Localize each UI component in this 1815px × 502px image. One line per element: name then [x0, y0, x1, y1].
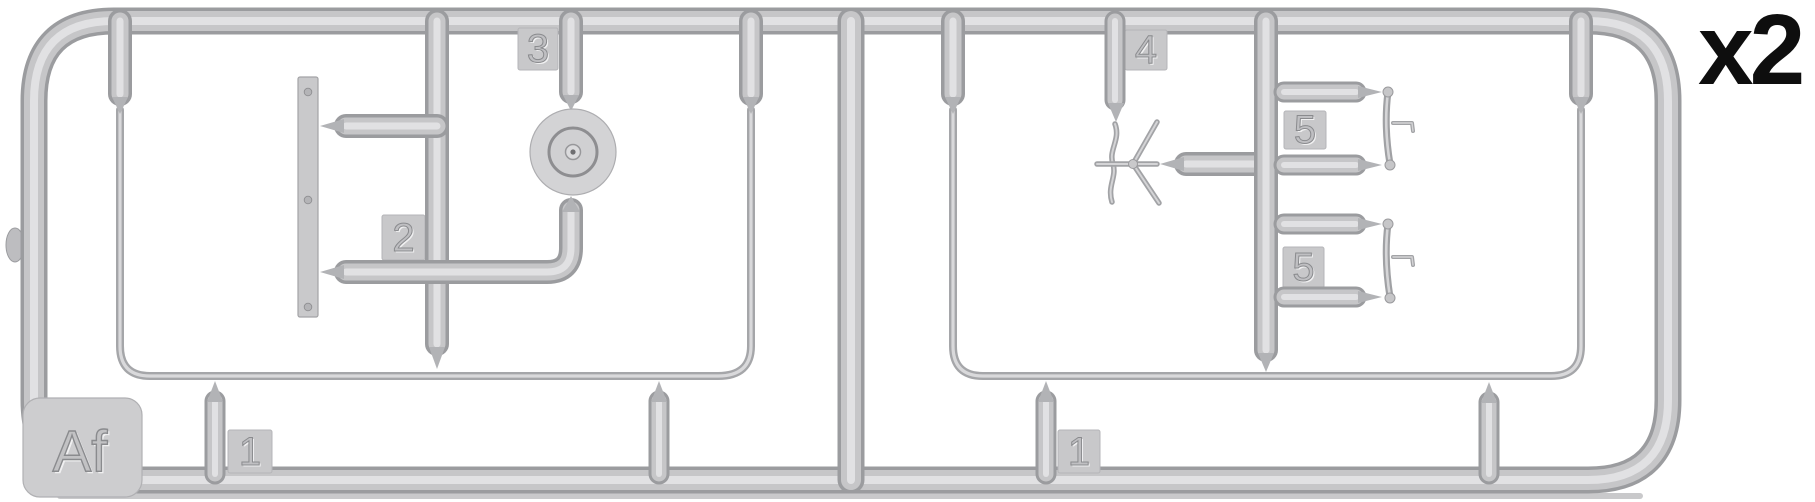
tool-knob — [1383, 219, 1393, 229]
sprue-gate — [1358, 86, 1382, 98]
sprue-letter: Af — [53, 420, 109, 485]
part-label-5-bottom: 5 5 — [1283, 246, 1324, 292]
sprue-gate — [320, 119, 344, 133]
sprue-gate — [945, 97, 961, 114]
tool-pin — [1393, 257, 1413, 265]
sprue-gate — [1573, 97, 1589, 114]
part-label-4: 4 4 — [1125, 28, 1167, 74]
label-text: 5 — [1294, 108, 1316, 152]
sprue-diagram: 2 2 3 3 1 1 4 4 5 5 5 5 1 1 — [0, 0, 1815, 502]
tool-knob — [1385, 160, 1395, 170]
tool-shaft — [1386, 92, 1390, 164]
sprue-letter-tab: Af Af — [23, 398, 142, 497]
tool-pin — [1393, 123, 1413, 131]
sprue-gate — [1358, 218, 1382, 230]
sprue-gate — [1358, 159, 1382, 171]
label-text: 5 — [1292, 246, 1314, 290]
quantity-text: x2 — [1698, 0, 1802, 106]
tool-shaft — [1386, 224, 1390, 297]
part-label-3: 3 3 — [518, 27, 558, 73]
bolt-detail — [304, 88, 312, 96]
sprue-gate — [112, 97, 128, 114]
sprue-diagram-page: 2 2 3 3 1 1 4 4 5 5 5 5 1 1 — [0, 0, 1815, 502]
sprue-gate — [1108, 103, 1124, 122]
sprue-gate — [651, 381, 667, 402]
sprue-gate — [743, 97, 759, 114]
bolt-detail — [304, 196, 312, 204]
tool-knob — [1385, 293, 1395, 303]
sprue-gate — [1358, 291, 1382, 303]
sprue-gate — [1481, 382, 1497, 403]
propeller-hub — [1129, 160, 1138, 169]
part-label-5-top: 5 5 — [1284, 108, 1326, 154]
sprue-gate — [1258, 353, 1274, 372]
runner-elbow — [346, 210, 571, 272]
part4-propeller — [1097, 122, 1159, 203]
wheel-hub-hole — [570, 149, 575, 154]
tool-knob — [1383, 87, 1393, 97]
sprue-gate — [429, 347, 445, 369]
sprue-gate — [1160, 157, 1184, 171]
part-label-1-right: 1 1 — [1058, 430, 1100, 476]
label-text: 1 — [239, 430, 261, 474]
bolt-detail — [304, 303, 312, 311]
part3-wheel — [530, 109, 616, 195]
part-label-1-left: 1 1 — [228, 430, 272, 476]
part-label-2: 2 2 — [382, 215, 425, 262]
label-text: 3 — [527, 27, 549, 71]
label-text: 2 — [392, 216, 414, 260]
sprue-gate — [320, 265, 344, 279]
sprue-gate — [207, 381, 223, 402]
label-text: 4 — [1135, 28, 1157, 72]
sprue-gate — [1038, 381, 1054, 402]
label-text: 1 — [1068, 430, 1090, 474]
